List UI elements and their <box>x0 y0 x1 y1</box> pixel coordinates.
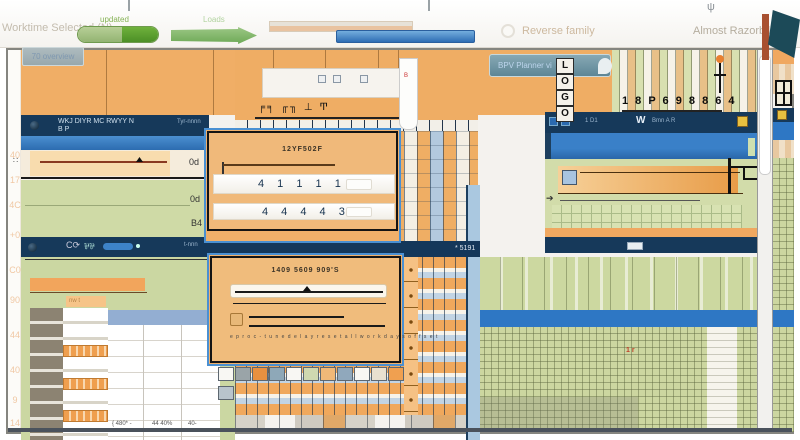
app-dot-icon[interactable] <box>30 121 39 130</box>
people-icon[interactable]: ⅌⅌ <box>84 241 94 252</box>
arrow-glyph-icon: ➔ <box>546 193 554 204</box>
w-logo-icon: W <box>636 115 645 126</box>
navy-band-text: * 5191 <box>455 245 475 252</box>
spinner-row-2-button[interactable] <box>346 207 372 217</box>
palette-swatch[interactable] <box>320 367 336 381</box>
left-green-section: 0d B4 <box>21 180 211 237</box>
scrollbar-thumb[interactable] <box>759 55 771 175</box>
logo-letter: O <box>556 106 574 122</box>
spinner-row-2-value: 4 4 4 4 3 <box>262 206 350 218</box>
mini-window-icon[interactable] <box>318 75 326 83</box>
title-left-text: 1 D1 <box>585 118 598 124</box>
right-green-panel: ➔ <box>545 159 758 231</box>
app-dot-icon[interactable] <box>28 243 37 252</box>
table-outline-icon <box>728 158 758 194</box>
dialog-1-title: 12YF502F <box>209 146 396 153</box>
slider-marker-icon[interactable] <box>303 286 311 291</box>
checkbox-label-line <box>249 316 344 318</box>
divider <box>106 50 107 115</box>
left-title-bar: WKJ DIYR MC RWYY N B P Tyr-nnnn <box>21 115 209 136</box>
person-flag-icon <box>712 55 728 97</box>
bottom-strip <box>8 428 792 432</box>
right-blue-band <box>545 133 758 159</box>
slider-value: 0d <box>189 157 199 167</box>
gutter-row-number: 44 <box>9 330 21 340</box>
right-title-bar: 1 D1 W Bmn A R <box>545 112 758 133</box>
chart-icon[interactable] <box>562 170 577 185</box>
yellow-badge-icon[interactable] <box>737 116 748 127</box>
overview-button[interactable]: 70 overview <box>22 47 84 66</box>
palette-swatch[interactable] <box>218 386 234 400</box>
psi-icon: ψ <box>707 1 715 13</box>
divider <box>181 325 182 440</box>
slider-fill <box>30 151 170 176</box>
planner-button[interactable]: BPV Planner vi <box>489 54 611 77</box>
left-blue-band <box>21 136 209 150</box>
yellow-badge-icon[interactable] <box>777 110 787 120</box>
divider <box>21 177 211 179</box>
status-pill[interactable] <box>103 243 133 250</box>
gutter-row-number: 17 <box>9 175 21 185</box>
palette-swatch[interactable] <box>286 367 302 381</box>
center-icon-row: ╒╕ ╓╖ ⊥ Ͳ <box>235 98 478 120</box>
highlighted-cell[interactable] <box>63 345 108 357</box>
spinner-row-2[interactable]: 4 4 4 4 3 <box>213 203 395 220</box>
dialog-1-input[interactable] <box>223 164 335 166</box>
logo-letter: O <box>556 74 574 90</box>
panel-divider <box>466 185 480 440</box>
window-tick-icon <box>128 0 130 11</box>
palette-swatch[interactable] <box>303 367 319 381</box>
table-footer-cell: { 480* - <box>112 421 132 427</box>
checkbox-label-line <box>249 325 385 327</box>
dialog-2-fine-print: e p r o c - t u n e d e l a y r e s e t … <box>230 334 438 340</box>
title-right-text: Tyr-nnnn <box>177 119 201 125</box>
palette-swatch[interactable] <box>269 367 285 381</box>
title-mid-text: Bmn A R <box>652 118 675 124</box>
column-mark: B <box>404 73 408 79</box>
mini-tag[interactable] <box>627 242 643 250</box>
dialog-2-glow: 1409 5609 909'S e p r o c - t u n e d e … <box>207 253 404 366</box>
table-header-band <box>108 310 220 325</box>
top-toolbar: Worktime Selected (N) updated Loads Reve… <box>0 0 800 48</box>
progress-pill <box>77 26 159 43</box>
palette-row <box>218 367 410 381</box>
right-orange-strip <box>545 228 758 237</box>
divider <box>30 292 147 293</box>
palette-swatch[interactable] <box>337 367 353 381</box>
palette-swatch[interactable] <box>235 367 251 381</box>
slider-track-line <box>235 291 383 293</box>
divider <box>213 50 214 115</box>
left-slider-row: ∷ 0d <box>21 150 209 177</box>
divider <box>233 303 386 304</box>
dot-icon <box>136 244 140 248</box>
reverse-radio-button[interactable] <box>501 24 515 38</box>
spinner-row-1[interactable]: 4 1 1 1 1 3 <box>213 174 395 194</box>
gutter-row-number: 90 <box>9 295 21 305</box>
progress-caption: updated <box>100 15 129 24</box>
slider-ticks-icon: ∷ <box>13 156 18 165</box>
red-marks: 1 r <box>626 347 635 354</box>
table-footer-cell: 44 40% <box>152 421 172 427</box>
right-edge-slice <box>773 50 794 432</box>
spinner-row-1-button[interactable] <box>346 179 372 190</box>
window-tick-icon <box>428 0 430 11</box>
refresh-icon[interactable]: C⟳ <box>66 240 80 251</box>
dialog-1: 12YF502F 4 1 1 1 1 3 4 4 4 4 3 <box>207 131 398 231</box>
mini-window-icon[interactable] <box>333 75 341 83</box>
table-footer-cell: 40- <box>188 421 197 427</box>
gutter-row-number: 14 <box>9 418 21 428</box>
timeline-slider[interactable] <box>40 161 167 163</box>
progress-pill-fill <box>122 27 158 42</box>
palette-swatch[interactable] <box>218 367 234 381</box>
dialog-1-glow: 12YF502F 4 1 1 1 1 3 4 4 4 4 3 <box>204 128 401 243</box>
palette-swatch[interactable] <box>388 367 404 381</box>
title-text: WKJ DIYR MC RWYY N <box>58 118 134 126</box>
row-header-column[interactable] <box>30 308 63 440</box>
window-grid-icon <box>775 80 792 106</box>
row-tag[interactable]: nw t <box>66 296 106 307</box>
forward-arrow-icon[interactable] <box>171 27 257 44</box>
gutter-row-number: +0 <box>9 230 21 240</box>
right-blue-band-2 <box>478 310 758 327</box>
gutter-row-number: 40 <box>9 365 21 375</box>
left-toolbar-bar: C⟳ ⅌⅌ t-nnn <box>21 237 211 257</box>
blue-progress-bar <box>336 30 475 43</box>
underline <box>622 110 722 112</box>
green-label-b: B4 <box>191 218 202 228</box>
logo-stack: L O G O <box>556 58 574 122</box>
baseline <box>255 117 415 119</box>
divider <box>25 205 190 206</box>
furniture-glyphs-icon: ╒╕ ╓╖ ⊥ Ͳ <box>258 102 330 113</box>
logo-letter: L <box>556 58 574 74</box>
orange-progress-bar <box>30 278 145 291</box>
swoosh-icon <box>598 58 612 74</box>
divider <box>25 259 207 260</box>
gray-overlay <box>478 397 638 432</box>
right-stripe-grid[interactable] <box>478 257 758 310</box>
dialog-2-title: 1409 5609 909'S <box>212 267 399 274</box>
divider <box>143 325 144 440</box>
green-label-a: 0d <box>190 194 200 204</box>
logo-letter: G <box>556 90 574 106</box>
mini-window-icon[interactable] <box>360 75 368 83</box>
left-table-section: nw t { 480* - 44 40% 40- <box>21 257 235 440</box>
title-subtext: B P <box>58 126 69 134</box>
dialog-2-checkbox[interactable] <box>230 313 243 326</box>
progress-pill-track <box>78 27 122 42</box>
reverse-label[interactable]: Reverse family <box>522 25 595 37</box>
dialog-2: 1409 5609 909'S e p r o c - t u n e d e … <box>210 256 401 363</box>
red-bar-icon <box>762 14 769 60</box>
gutter-row-number: 9 <box>9 395 21 405</box>
dialog-2-slider[interactable] <box>230 284 387 298</box>
highlighted-cell[interactable] <box>63 378 108 390</box>
column-highlight[interactable]: B <box>399 58 418 130</box>
gantt-bar[interactable] <box>558 166 738 194</box>
palette-swatch[interactable] <box>252 367 268 381</box>
palette-swatch[interactable] <box>371 367 387 381</box>
vertical-scrollbar[interactable] <box>757 50 773 432</box>
toolbar-right-text: t-nnn <box>184 242 198 248</box>
gutter-row-number: 4C <box>9 200 21 210</box>
right-navy-strip <box>545 237 758 253</box>
scroll-nub[interactable] <box>748 138 755 156</box>
arrow-caption: Loads <box>203 15 225 24</box>
highlighted-cell[interactable] <box>63 410 108 422</box>
center-white-band <box>262 68 415 98</box>
highlighted-column[interactable] <box>707 327 737 432</box>
palette-swatch[interactable] <box>354 367 370 381</box>
gutter-row-number: C0 <box>9 265 21 275</box>
